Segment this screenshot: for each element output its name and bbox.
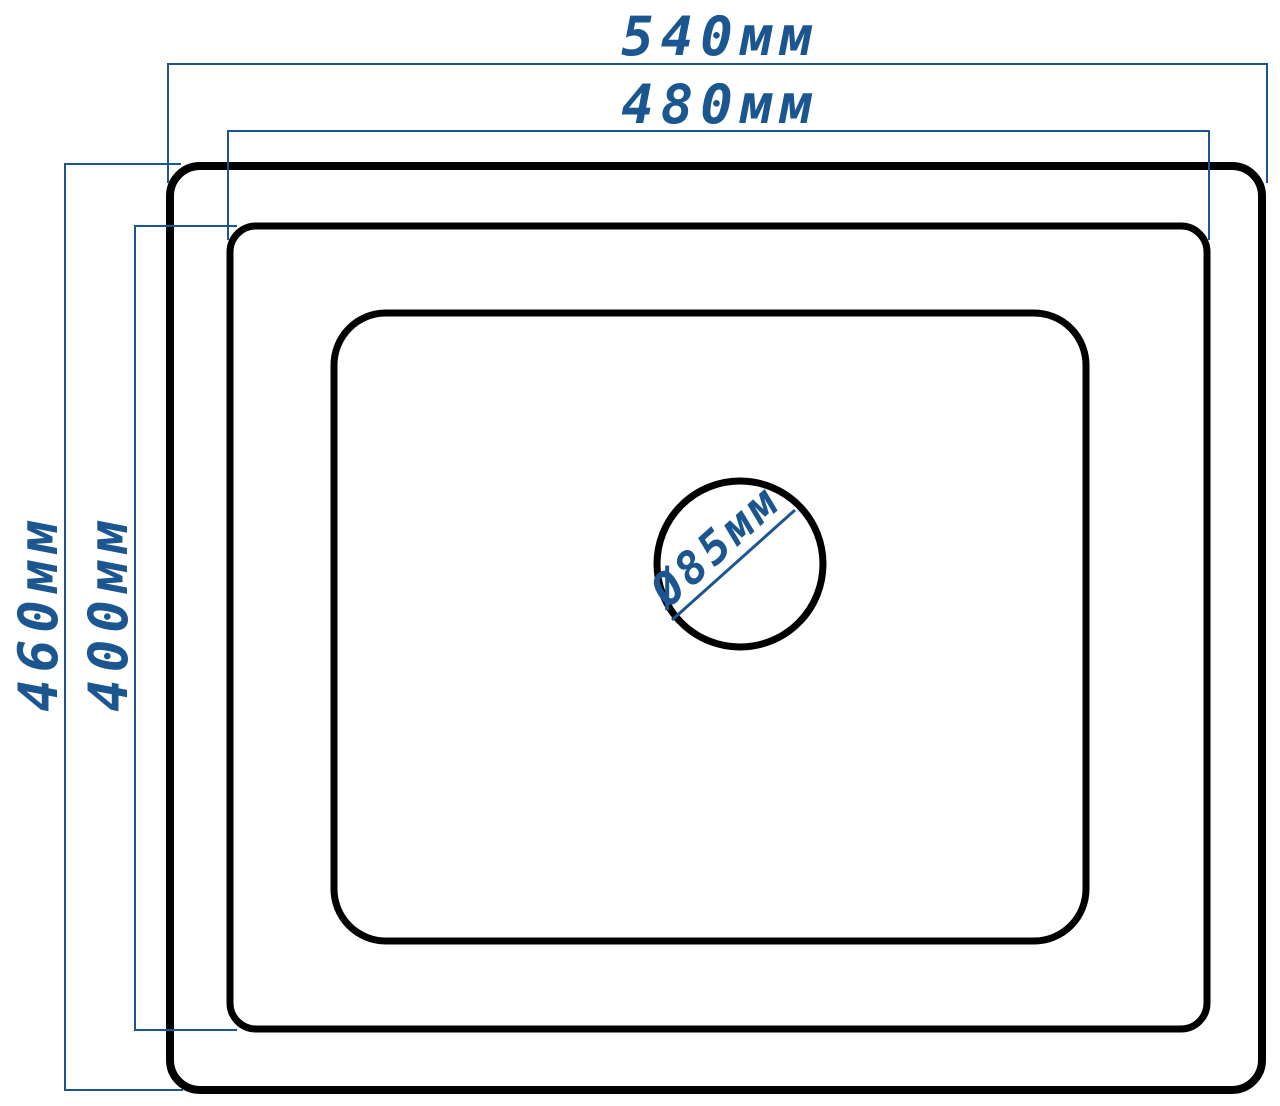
sink-outline-group [170,166,1262,1090]
dim-label-rim-height: 400мм [77,514,140,712]
dim-line-rim-height [135,226,237,1030]
dimension-labels-group: 540мм 480мм 460мм 400мм Ø85мм [7,5,819,712]
dim-label-outer-width: 540мм [621,5,819,68]
dim-label-rim-width: 480мм [621,73,819,136]
sink-dimension-drawing: 540мм 480мм 460мм 400мм Ø85мм [0,0,1280,1106]
sink-bowl [334,313,1086,941]
sink-rim [230,226,1207,1029]
dimension-drawing-canvas: 540мм 480мм 460мм 400мм Ø85мм [0,0,1280,1106]
dim-label-outer-height: 460мм [7,514,70,712]
